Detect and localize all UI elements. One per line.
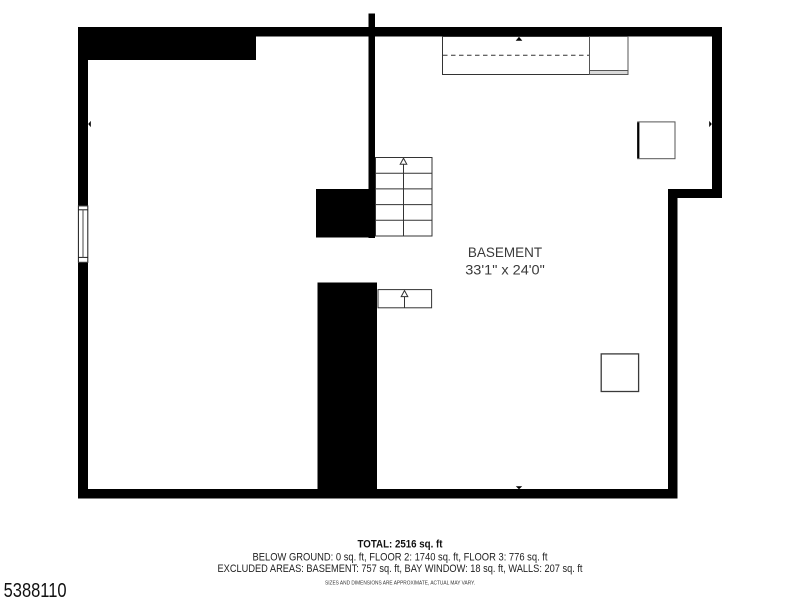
svg-text:BELOW GROUND: 0 sq. ft, FLOOR: BELOW GROUND: 0 sq. ft, FLOOR 2: 1740 sq… — [253, 551, 549, 563]
svg-text:33'1" x 24'0": 33'1" x 24'0" — [465, 263, 545, 278]
svg-text:5388110: 5388110 — [4, 580, 67, 600]
svg-text:TOTAL: 2516 sq. ft: TOTAL: 2516 sq. ft — [358, 538, 443, 550]
svg-text:BASEMENT: BASEMENT — [468, 245, 542, 260]
svg-text:SIZES AND DIMENSIONS ARE APPRO: SIZES AND DIMENSIONS ARE APPROXIMATE, AC… — [325, 580, 475, 586]
svg-text:EXCLUDED AREAS: BASEMENT: 757: EXCLUDED AREAS: BASEMENT: 757 sq. ft, BA… — [218, 563, 584, 575]
